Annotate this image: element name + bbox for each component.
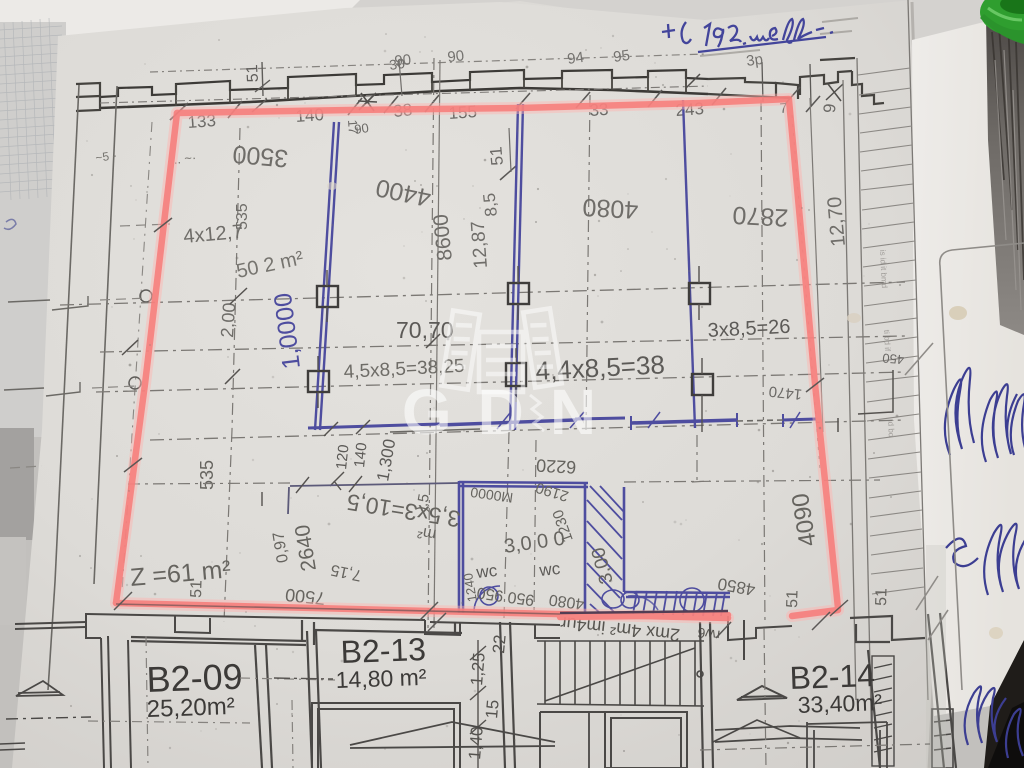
svg-text:120: 120 xyxy=(333,444,353,471)
svg-text:id bd: id bd xyxy=(886,420,896,438)
svg-text:3500: 3500 xyxy=(231,140,289,173)
svg-text:2870: 2870 xyxy=(732,201,789,232)
svg-text:2,00: 2,00 xyxy=(217,302,239,338)
svg-text:33,40m²: 33,40m² xyxy=(797,689,883,718)
svg-text:wc: wc xyxy=(474,561,498,582)
svg-text:15: 15 xyxy=(482,699,503,720)
svg-text:70,70: 70,70 xyxy=(396,317,454,343)
svg-text:6: 6 xyxy=(819,103,839,114)
svg-text:51: 51 xyxy=(873,588,891,606)
svg-text:535: 535 xyxy=(197,460,217,490)
svg-text:90: 90 xyxy=(394,51,412,70)
svg-text:12,70: 12,70 xyxy=(824,196,850,248)
svg-text:90: 90 xyxy=(353,120,369,137)
svg-text:~5 -: ~5 - xyxy=(94,148,117,165)
svg-text:1,40: 1,40 xyxy=(465,726,487,761)
svg-text:95: 95 xyxy=(612,47,631,66)
svg-text:6220: 6220 xyxy=(536,455,577,477)
svg-text:450: 450 xyxy=(882,351,905,368)
svg-text:3x8,5=26: 3x8,5=26 xyxy=(707,316,791,342)
svg-text:14,80 m²: 14,80 m² xyxy=(335,664,427,693)
svg-text:535: 535 xyxy=(234,203,251,230)
svg-text:94: 94 xyxy=(566,49,585,68)
svg-text:90: 90 xyxy=(447,47,465,66)
svg-text:51: 51 xyxy=(188,580,206,598)
svg-text:1470: 1470 xyxy=(768,382,803,402)
svg-text:GDN: GDN xyxy=(402,376,622,448)
svg-text:12,87: 12,87 xyxy=(468,220,492,269)
svg-text:ti bd if: ti bd if xyxy=(882,330,892,353)
svg-text:22: 22 xyxy=(489,634,510,655)
svg-text:51: 51 xyxy=(244,64,262,83)
svg-text:8,5: 8,5 xyxy=(480,192,501,217)
svg-text:25,20m²: 25,20m² xyxy=(146,693,235,723)
svg-text:140: 140 xyxy=(351,442,371,469)
svg-text:51: 51 xyxy=(784,590,802,608)
svg-text:wc: wc xyxy=(537,559,561,580)
svg-text:8600: 8600 xyxy=(429,213,457,262)
svg-text:3p: 3p xyxy=(745,51,764,70)
svg-text:m²: m² xyxy=(416,523,438,543)
svg-text:51: 51 xyxy=(486,146,507,167)
svg-text:4080: 4080 xyxy=(582,193,639,224)
